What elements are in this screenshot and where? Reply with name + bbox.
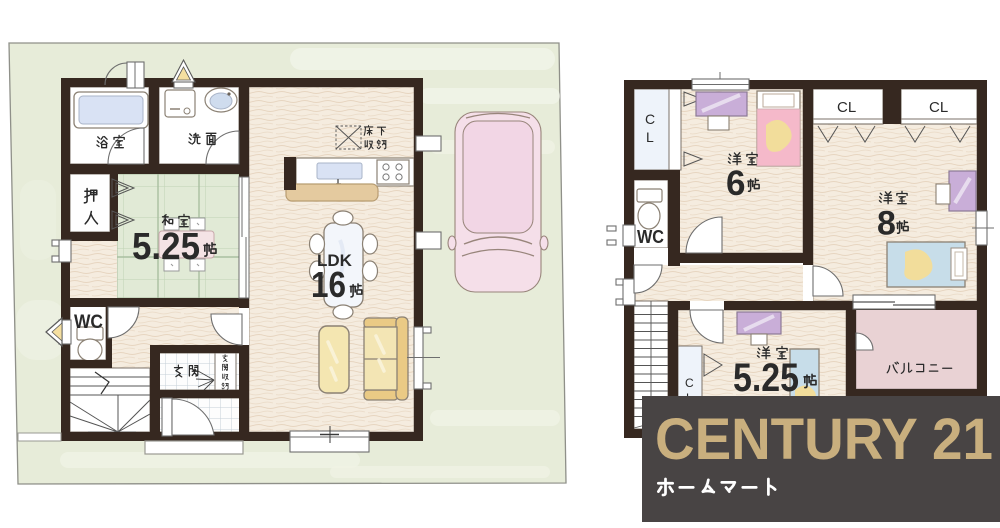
svg-text:WC: WC bbox=[74, 312, 103, 333]
svg-text:5.25: 5.25 bbox=[733, 356, 799, 400]
svg-text:6: 6 bbox=[726, 164, 745, 203]
svg-text:CL: CL bbox=[929, 99, 948, 116]
svg-text:16: 16 bbox=[311, 264, 346, 305]
svg-text:WC: WC bbox=[637, 227, 664, 247]
svg-text:8: 8 bbox=[877, 205, 896, 243]
svg-text:L: L bbox=[646, 129, 654, 145]
svg-text:C: C bbox=[685, 376, 694, 390]
svg-text:CENTURY 21: CENTURY 21 bbox=[655, 407, 993, 472]
svg-text:5.25: 5.25 bbox=[132, 226, 200, 268]
svg-text:C: C bbox=[645, 111, 655, 127]
svg-text:CL: CL bbox=[837, 99, 856, 116]
